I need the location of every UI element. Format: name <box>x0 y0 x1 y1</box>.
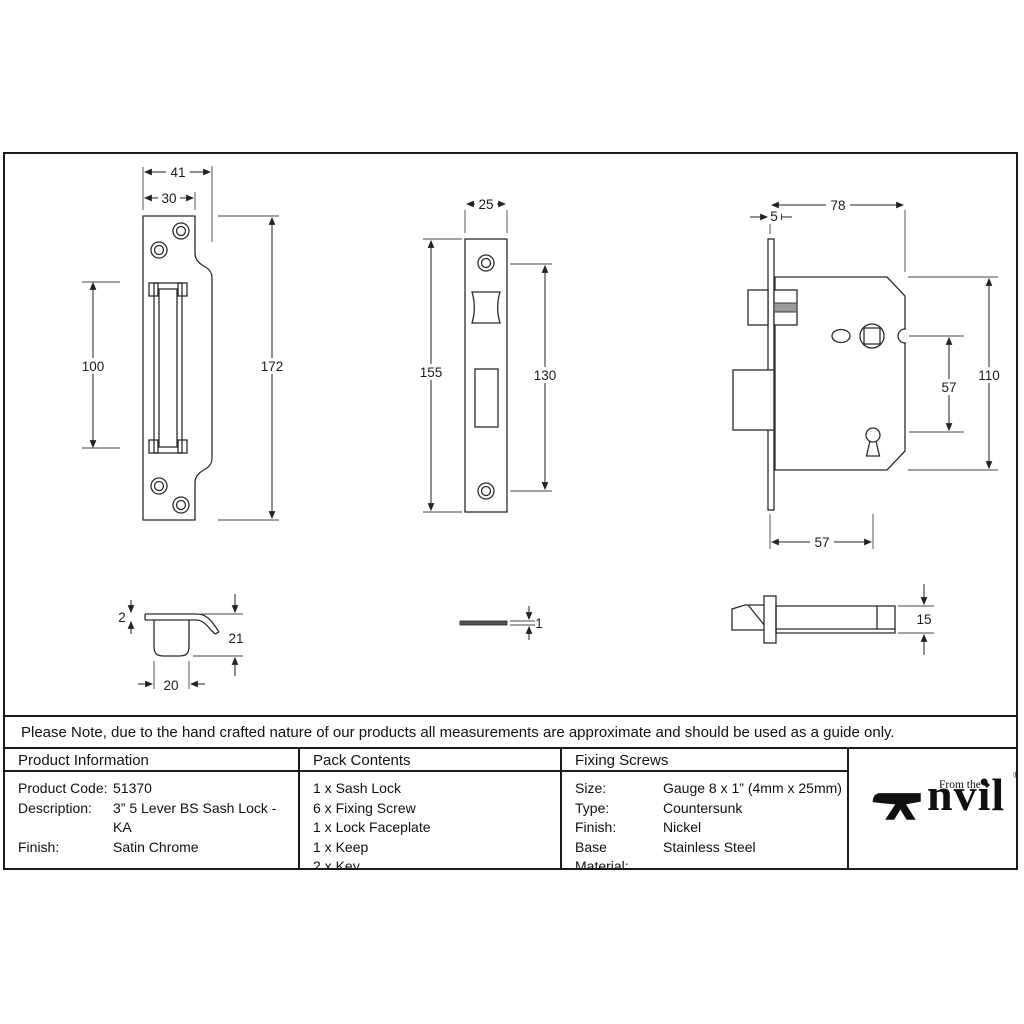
dim-keep-opening-height: 100 <box>82 359 105 374</box>
screw-size-value: Gauge 8 x 1” (4mm x 25mm) <box>663 779 847 799</box>
dim-faceplate-width: 25 <box>478 197 493 212</box>
keep-side-dimension-labels: 2 21 20 <box>118 610 243 693</box>
dim-keep-plate-height: 172 <box>261 359 284 374</box>
technical-drawings: 41 30 100 172 <box>5 154 1016 715</box>
table-row: Finish: Satin Chrome <box>18 838 298 858</box>
pack-item: 1 x Lock Faceplate <box>313 818 560 838</box>
dim-keep-outer-width: 41 <box>170 165 185 180</box>
dim-lock-case-thickness: 15 <box>916 612 931 627</box>
logo-name: nvil <box>927 772 1005 818</box>
description-value: 3” 5 Lever BS Sash Lock - KA <box>113 799 298 838</box>
dim-faceplate-screw-spacing: 130 <box>534 368 557 383</box>
row-label: Finish: <box>18 838 113 858</box>
pack-item: 6 x Fixing Screw <box>313 799 560 819</box>
row-label: Base Material: <box>575 838 663 869</box>
fixing-screws-header: Fixing Screws <box>562 749 847 772</box>
drawing-lock-side <box>733 239 915 510</box>
drawing-keep-side <box>145 614 219 656</box>
note-text: Please Note, due to the hand crafted nat… <box>21 724 895 741</box>
product-information-header: Product Information <box>5 749 298 772</box>
lock-side-witness-lines <box>770 210 998 549</box>
faceplate-front-dimension-labels: 25 155 130 <box>417 196 559 383</box>
dim-lock-body-height: 110 <box>978 368 1000 383</box>
lock-side-dimension-labels: 78 5 110 57 57 <box>768 197 1004 550</box>
column-brand: From the ◆ nvil ® <box>847 749 1016 868</box>
row-label: Type: <box>575 799 663 819</box>
screw-material-value: Stainless Steel <box>663 838 847 869</box>
drawing-faceplate-side: 1 <box>460 606 543 640</box>
row-label: Size: <box>575 779 663 799</box>
product-code-value: 51370 <box>113 779 298 799</box>
dim-lock-backset: 57 <box>814 535 829 550</box>
dim-lock-faceplate-thickness: 5 <box>770 209 778 224</box>
brand-logo: From the ◆ nvil ® <box>869 779 1016 834</box>
table-row: Base Material: Stainless Steel <box>575 838 847 869</box>
dim-lock-body-width: 78 <box>830 198 845 213</box>
drawing-keep-front <box>143 216 212 520</box>
column-pack-contents: Pack Contents 1 x Sash Lock 6 x Fixing S… <box>298 749 560 868</box>
spec-sheet: 41 30 100 172 <box>3 152 1018 870</box>
pack-item: 1 x Keep <box>313 838 560 858</box>
dim-keep-depth: 21 <box>228 631 243 646</box>
table-row: Type: Countersunk <box>575 799 847 819</box>
pack-item: 2 x Key <box>313 857 560 868</box>
screw-finish-value: Nickel <box>663 818 847 838</box>
screw-type-value: Countersunk <box>663 799 847 819</box>
drawing-faceplate-front <box>465 239 507 512</box>
row-label: Product Code: <box>18 779 113 799</box>
dim-faceplate-height: 155 <box>420 365 443 380</box>
finish-value: Satin Chrome <box>113 838 298 858</box>
keep-front-witness-lines <box>82 166 279 520</box>
row-label: Description: <box>18 799 113 838</box>
dim-keep-plate-thickness: 2 <box>118 610 126 625</box>
keep-side-dimension-lines <box>131 594 235 684</box>
dim-keep-box-width: 20 <box>163 678 178 693</box>
dim-faceplate-thickness: 1 <box>535 616 543 631</box>
table-row: Finish: Nickel <box>575 818 847 838</box>
column-product-information: Product Information Product Code: 51370 … <box>5 749 298 868</box>
pack-item: 1 x Sash Lock <box>313 779 560 799</box>
drawings-panel: 41 30 100 172 <box>5 154 1016 715</box>
table-row: Description: 3” 5 Lever BS Sash Lock - K… <box>18 799 298 838</box>
row-label: Finish: <box>575 818 663 838</box>
table-row: Size: Gauge 8 x 1” (4mm x 25mm) <box>575 779 847 799</box>
table-row: Product Code: 51370 <box>18 779 298 799</box>
pack-contents-header: Pack Contents <box>300 749 560 772</box>
column-fixing-screws: Fixing Screws Size: Gauge 8 x 1” (4mm x … <box>560 749 847 868</box>
lock-side-dimension-lines <box>750 205 989 542</box>
dim-lock-spindle-to-keyhole: 57 <box>941 380 956 395</box>
faceplate-front-dimension-lines <box>431 204 545 510</box>
registered-mark: ® <box>1013 770 1016 780</box>
anvil-icon <box>871 785 923 825</box>
measurement-note: Please Note, due to the hand crafted nat… <box>5 715 1016 747</box>
drawing-lock-top <box>732 596 895 643</box>
dim-keep-inner-width: 30 <box>161 191 176 206</box>
product-info-table: Product Information Product Code: 51370 … <box>5 747 1016 868</box>
